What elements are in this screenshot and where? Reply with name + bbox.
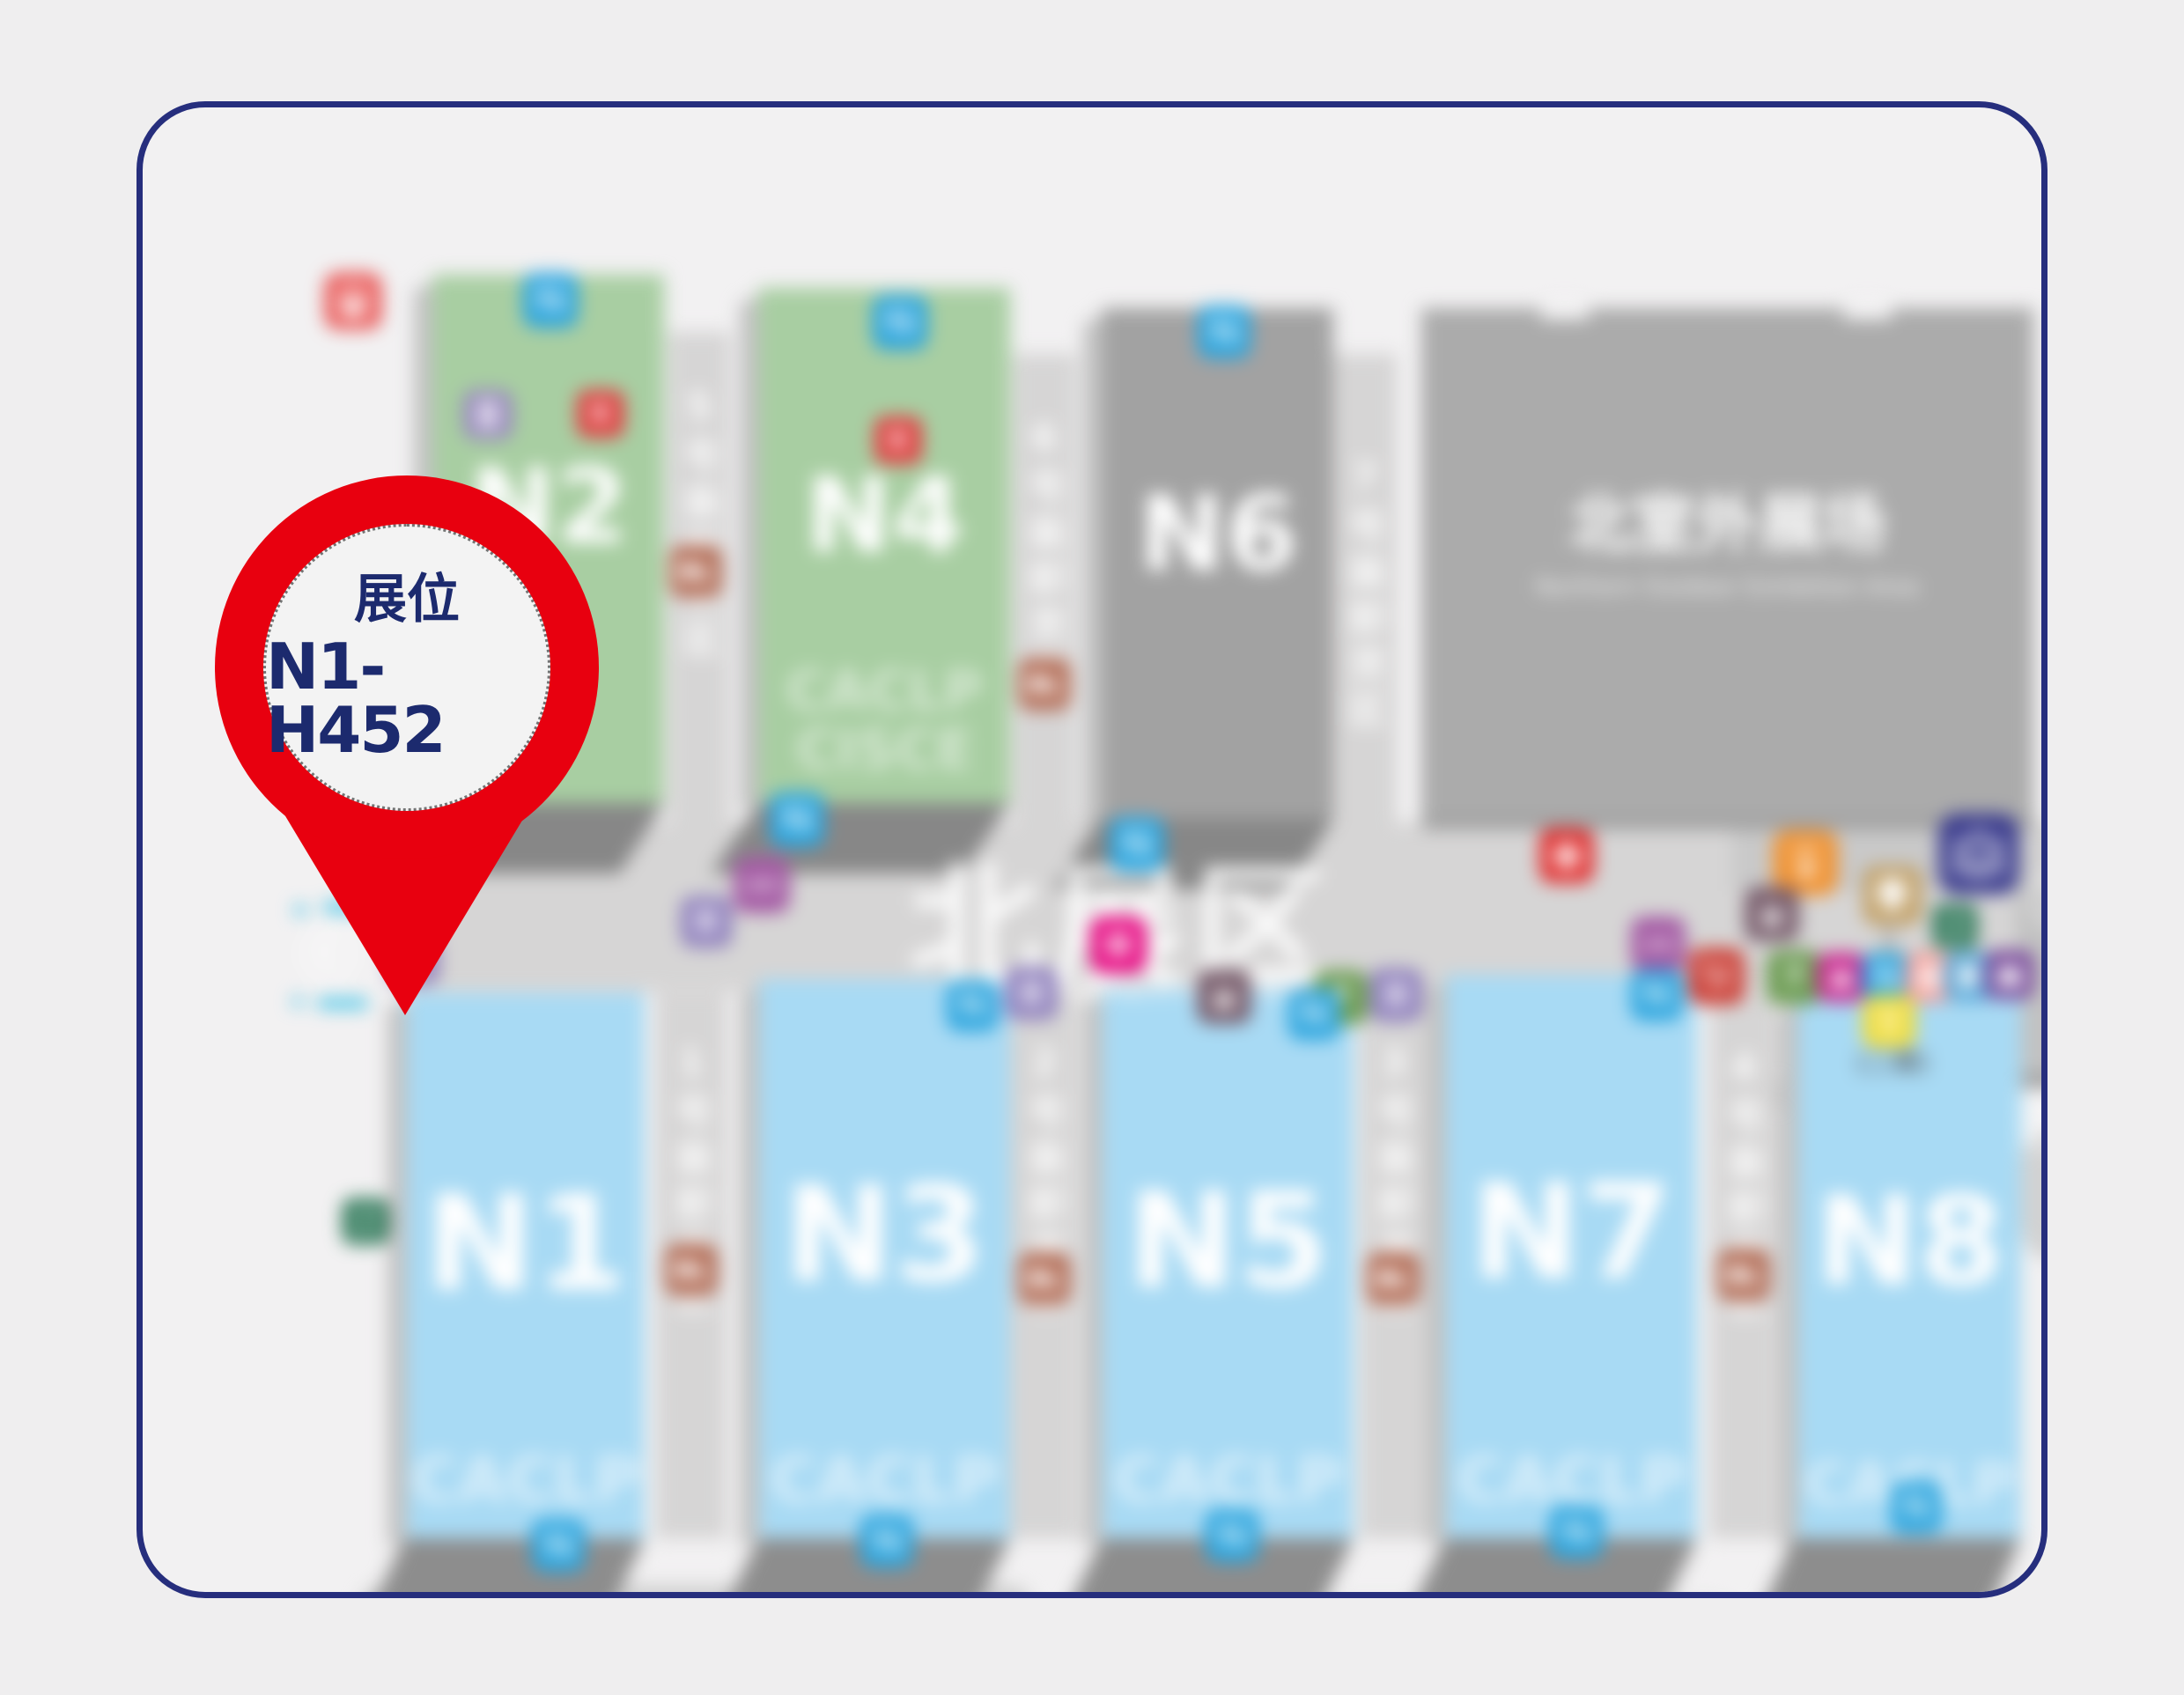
svg-text:ATM: ATM: [746, 879, 777, 894]
restroom-icon: [1631, 969, 1682, 1021]
first-aid-icon: [1539, 829, 1594, 883]
hall-shadow-N2: [385, 803, 664, 873]
hall-side-N4: [740, 295, 759, 812]
restroom-icon: [1206, 1509, 1258, 1562]
hall-outdoor: 北室外展场Northern Outdoor Exhibition Area: [1421, 308, 2033, 819]
fire-extinguisher-icon: [874, 416, 922, 464]
meeting-point-icon: [1090, 917, 1147, 973]
hall-N7: N7CACLP: [1446, 975, 1697, 1538]
print-service-icon: [1863, 866, 1922, 925]
gate-c-mark: [317, 999, 368, 1008]
escalator-icon: [1933, 904, 1977, 948]
hall-N4: N4CACLPCISCE: [759, 288, 1010, 803]
hall-N3: N3CACLP: [759, 979, 1010, 1538]
hall-subtitle-N5: CACLP: [1103, 1447, 1354, 1515]
hall-shadow-N7: [1398, 1538, 1697, 1598]
hall-subtitle-N1: CACLP: [407, 1447, 645, 1515]
hall-label-N2: N2: [433, 454, 664, 558]
svg-text:P: P: [333, 595, 353, 627]
road-corner-block: [2021, 1129, 2047, 1261]
restroom-icon: [770, 792, 824, 847]
exhibition-map: 5号装卸货区6号装卸货区7号装卸货区1号装卸货区2号装卸货区3号装卸货区4号装卸…: [0, 0, 2184, 1695]
hall-label-outdoor: 北室外展场: [1421, 492, 2033, 556]
hall-N6: N6: [1103, 308, 1333, 819]
loading-corridor-label: 6号装卸货区: [1018, 416, 1072, 696]
hall-shadow-N8: [1750, 1538, 2021, 1598]
restroom-icon: [1110, 817, 1164, 872]
restroom-icon: [1288, 989, 1339, 1040]
hall-label-N1: N1: [407, 1178, 645, 1310]
loading-truck-icon: [665, 1243, 718, 1296]
loading-truck-icon: [1018, 658, 1071, 711]
restroom-icon: [1891, 1482, 1942, 1533]
information-icon: ?: [1767, 950, 1821, 1005]
hall-shadow-N1: [358, 1538, 645, 1598]
hall-subtitle-N3: CACLP: [759, 1447, 1010, 1515]
hall-label-N8: N8: [1798, 1181, 2021, 1304]
hall-shadow-N5: [1054, 1538, 1354, 1598]
restroom-icon: [532, 1519, 585, 1572]
hall-side-N3: [740, 986, 759, 1547]
hall-label-en-outdoor: Northern Outdoor Exhibition Area: [1421, 574, 2033, 601]
restroom-icon: [523, 273, 578, 328]
restroom-icon: [1198, 306, 1251, 358]
vip-lounge-icon: VIP: [1773, 830, 1838, 895]
hall-N5: N5CACLP: [1103, 988, 1354, 1538]
gate-c-mark: [323, 903, 369, 912]
atm-icon: ATM: [1631, 917, 1686, 971]
loading-truck-icon: [1717, 1249, 1770, 1301]
loading-corridor-label: 7号装卸货区: [1339, 455, 1392, 736]
tour-group-icon: [1938, 814, 2019, 895]
atm-icon: ATM: [734, 857, 790, 913]
registration-icon: [463, 390, 513, 439]
hall-side-N6: [1083, 315, 1103, 828]
loading-truck-icon: [1018, 1252, 1071, 1305]
directory-icon: [1369, 969, 1422, 1021]
hall-label-N6: N6: [1103, 482, 1333, 586]
gate-c-mark: [292, 997, 303, 1006]
gate-c-mark: [294, 905, 306, 915]
directory-icon: [681, 896, 732, 947]
hall-N1: N1CACLP: [407, 992, 645, 1538]
hall-label-N5: N5: [1103, 1175, 1354, 1308]
hall-side-N8: [1779, 1004, 1798, 1547]
hall-side-N2: [414, 282, 433, 812]
svg-text:ATM: ATM: [1643, 939, 1673, 953]
svg-text:VIP: VIP: [1793, 844, 1819, 860]
press-center-icon: NEWS: [1863, 995, 1915, 1048]
map-frame: 5号装卸货区6号装卸货区7号装卸货区1号装卸货区2号装卸货区3号装卸货区4号装卸…: [136, 101, 2047, 1598]
hall-side-N1: [387, 999, 407, 1547]
restroom-icon: [947, 980, 998, 1031]
luggage-icon: [1985, 950, 2034, 999]
restroom-icon: [1550, 1506, 1603, 1559]
business-center-icon: [1817, 953, 1866, 1002]
escalator-icon: [343, 1198, 388, 1244]
cafe-icon: [1745, 887, 1799, 941]
hall-label-N7: N7: [1446, 1167, 1697, 1299]
hall-side-N5: [1083, 995, 1103, 1547]
loading-corridor-3: 7号装卸货区: [1333, 354, 1397, 822]
hall-label-N3: N3: [759, 1169, 1010, 1301]
hall-label-N4: N4: [759, 463, 1010, 567]
cafe-icon: [1197, 969, 1251, 1024]
svg-text:?: ?: [1785, 960, 1803, 995]
directory-icon: [1005, 967, 1058, 1020]
restroom-icon: [873, 295, 927, 350]
outdoor-gate-notch: [1844, 300, 1892, 320]
fire-extinguisher-icon: [577, 390, 624, 438]
restroom-icon: [860, 1514, 913, 1567]
outdoor-gate-notch: [1541, 300, 1589, 320]
loading-truck-icon: [669, 545, 722, 598]
bus-station-icon: [325, 273, 381, 329]
loading-corridor-2: 6号装卸货区: [1013, 354, 1076, 822]
registration-icon: [389, 935, 439, 984]
hall-N2: N2: [433, 275, 664, 803]
hall-side-N7: [1427, 982, 1446, 1547]
loading-corridor-label: 5号装卸货区: [673, 385, 727, 666]
shop-icon: [1688, 948, 1745, 1005]
parking-icon: P: [312, 584, 375, 647]
hall-subtitle-N4: CACLPCISCE: [759, 662, 1010, 780]
svg-text:NEWS: NEWS: [1875, 1006, 1903, 1015]
map-blurred-content: 5号装卸货区6号装卸货区7号装卸货区1号装卸货区2号装卸货区3号装卸货区4号装卸…: [143, 107, 2041, 1592]
loading-truck-icon: [1367, 1252, 1420, 1305]
entrance-c-label: C: [299, 925, 358, 983]
